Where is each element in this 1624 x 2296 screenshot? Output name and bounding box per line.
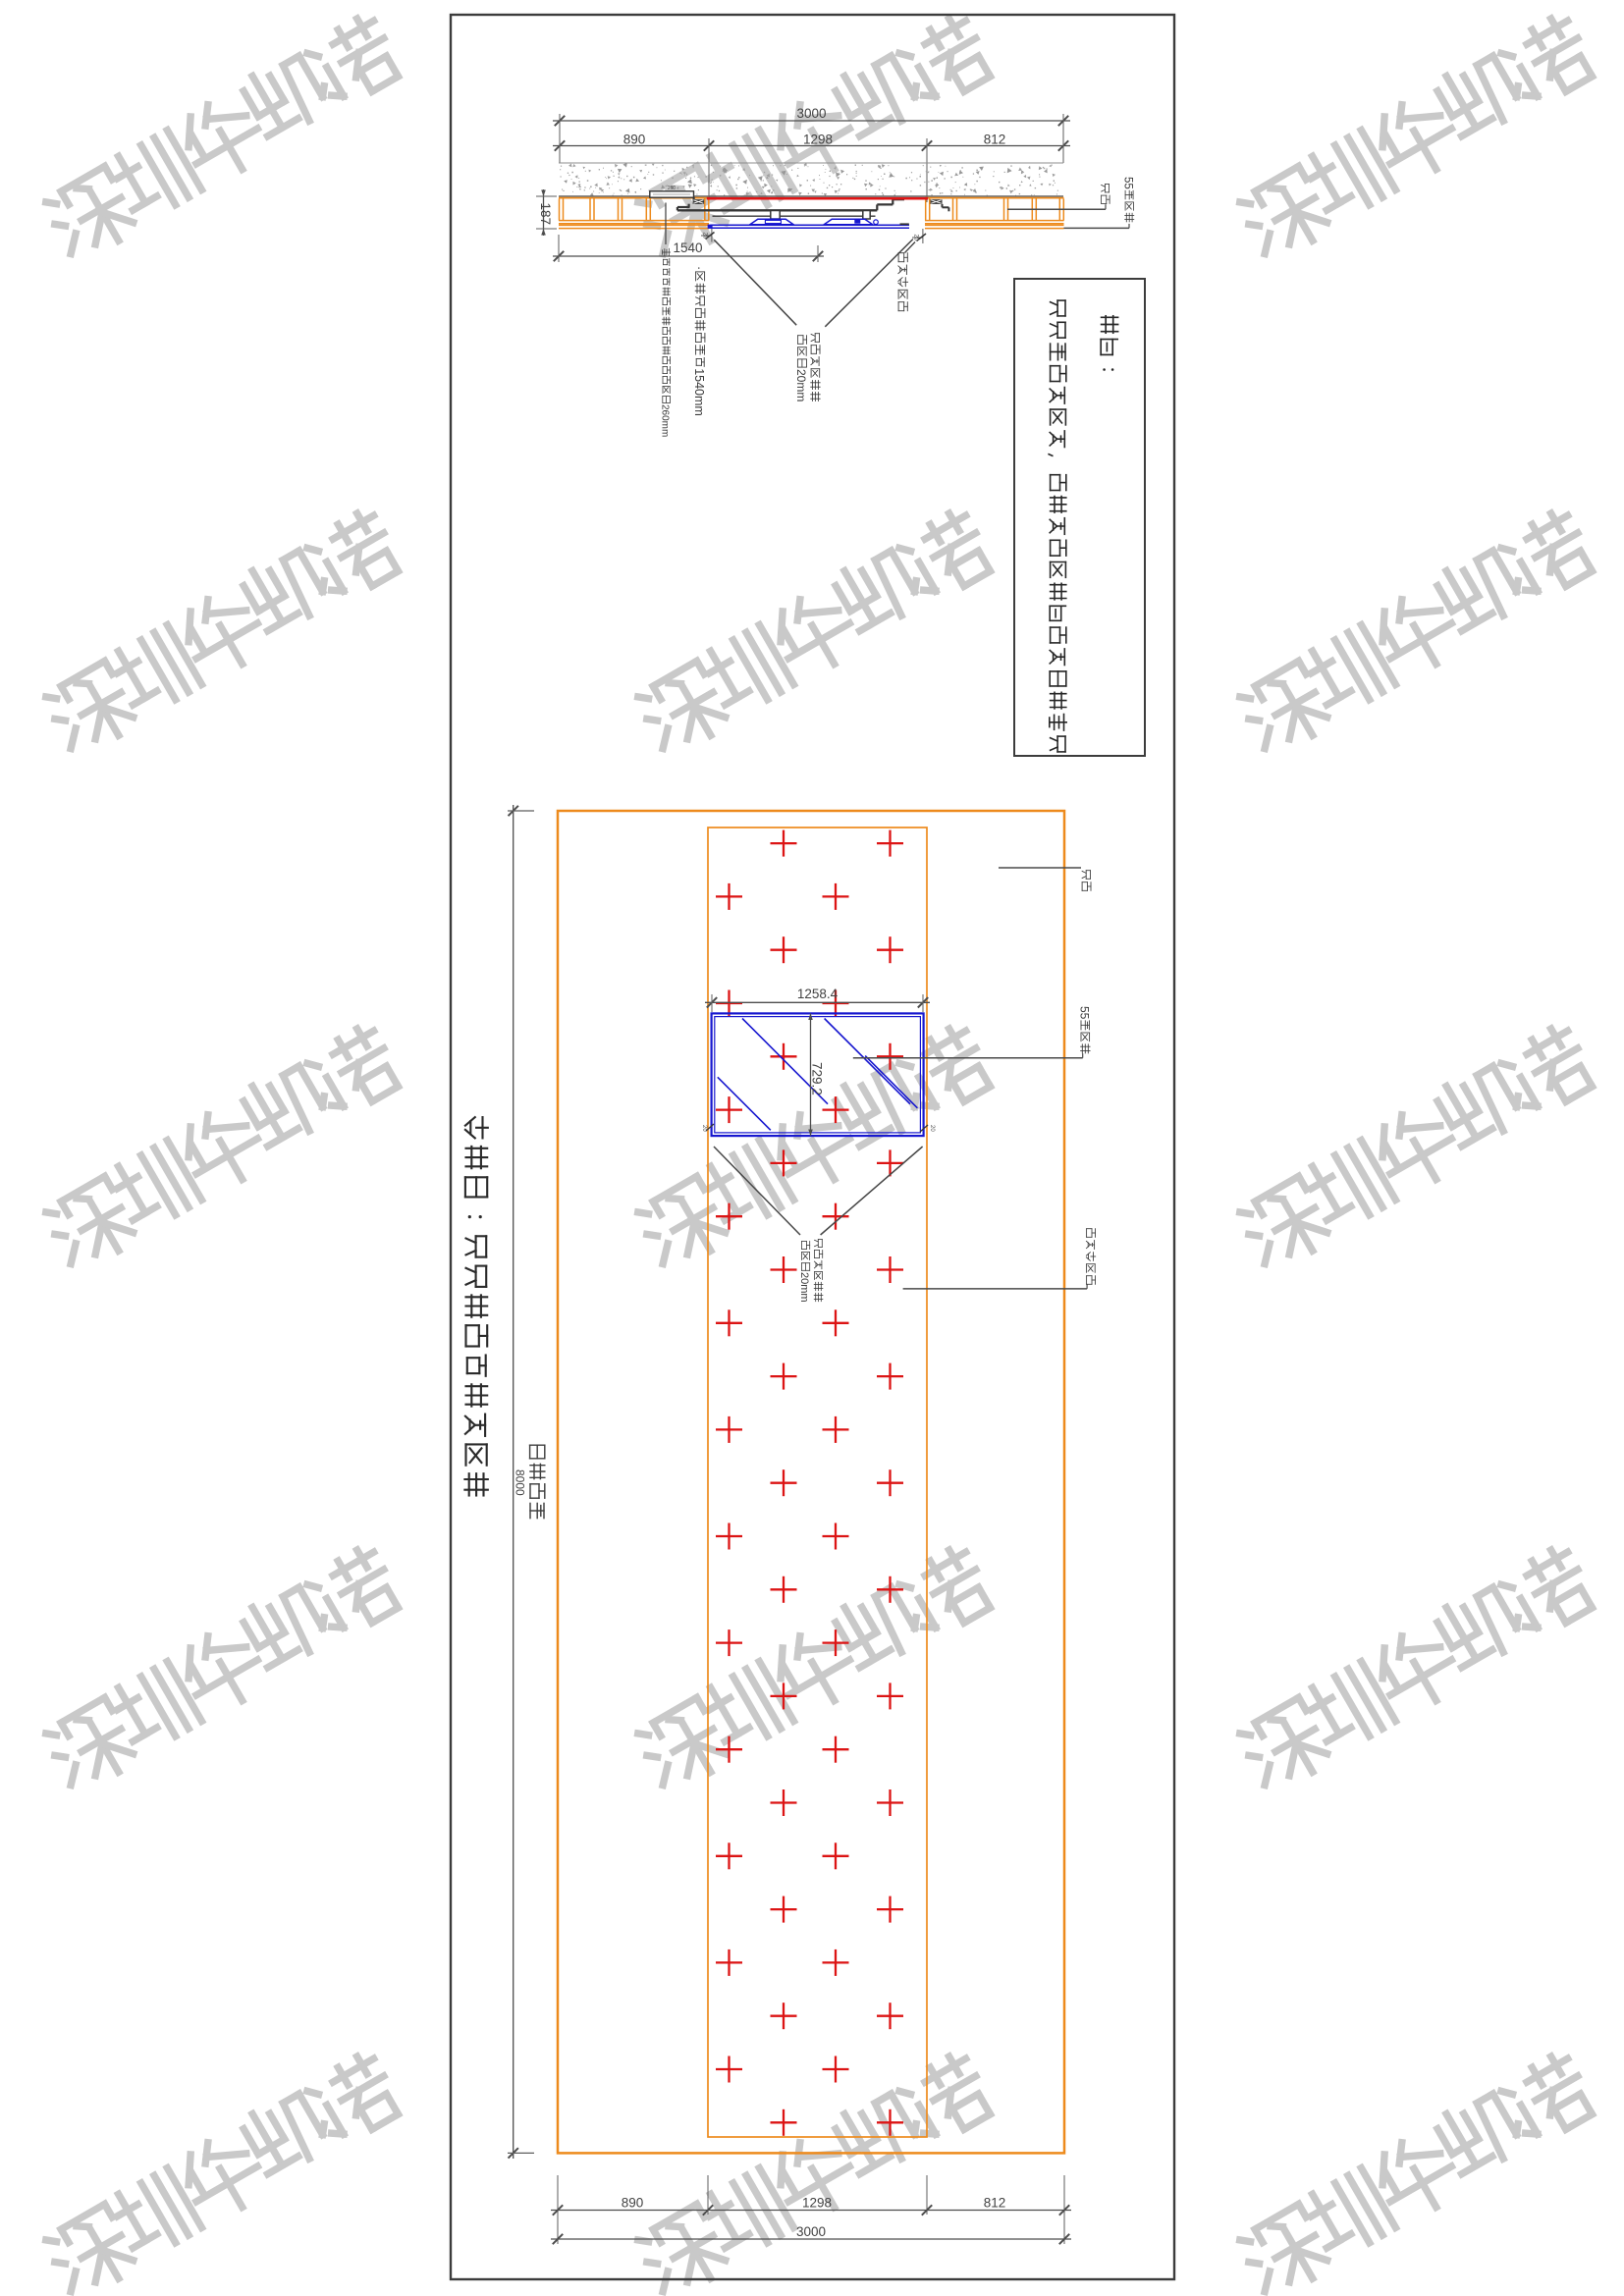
svg-text:3000: 3000 bbox=[796, 106, 826, 121]
svg-text:20: 20 bbox=[701, 1125, 707, 1132]
svg-text:890: 890 bbox=[623, 132, 646, 146]
svg-text:55: 55 bbox=[1122, 177, 1134, 189]
svg-text:20: 20 bbox=[702, 233, 708, 240]
svg-text:1258.4: 1258.4 bbox=[797, 987, 839, 1001]
svg-text:·: · bbox=[692, 266, 706, 270]
svg-text:55: 55 bbox=[1077, 1006, 1091, 1020]
svg-text:1540mm: 1540mm bbox=[692, 368, 706, 416]
svg-text:20: 20 bbox=[913, 235, 919, 241]
svg-text:8000: 8000 bbox=[514, 1469, 527, 1496]
svg-text:20mm: 20mm bbox=[798, 1272, 810, 1303]
svg-text:812: 812 bbox=[984, 2196, 1006, 2211]
svg-text:260mm: 260mm bbox=[660, 404, 671, 437]
svg-text:1540: 1540 bbox=[673, 240, 702, 255]
svg-text:260: 260 bbox=[668, 186, 677, 191]
svg-text:812: 812 bbox=[984, 132, 1006, 146]
svg-text:20mm: 20mm bbox=[794, 369, 808, 401]
svg-text:20: 20 bbox=[929, 1125, 935, 1132]
svg-text:890: 890 bbox=[622, 2196, 644, 2211]
svg-text:1298: 1298 bbox=[803, 132, 833, 146]
svg-text:187: 187 bbox=[538, 203, 553, 226]
svg-text:729.2: 729.2 bbox=[810, 1062, 825, 1095]
svg-text:1298: 1298 bbox=[802, 2196, 832, 2211]
svg-text:3000: 3000 bbox=[796, 2224, 826, 2239]
